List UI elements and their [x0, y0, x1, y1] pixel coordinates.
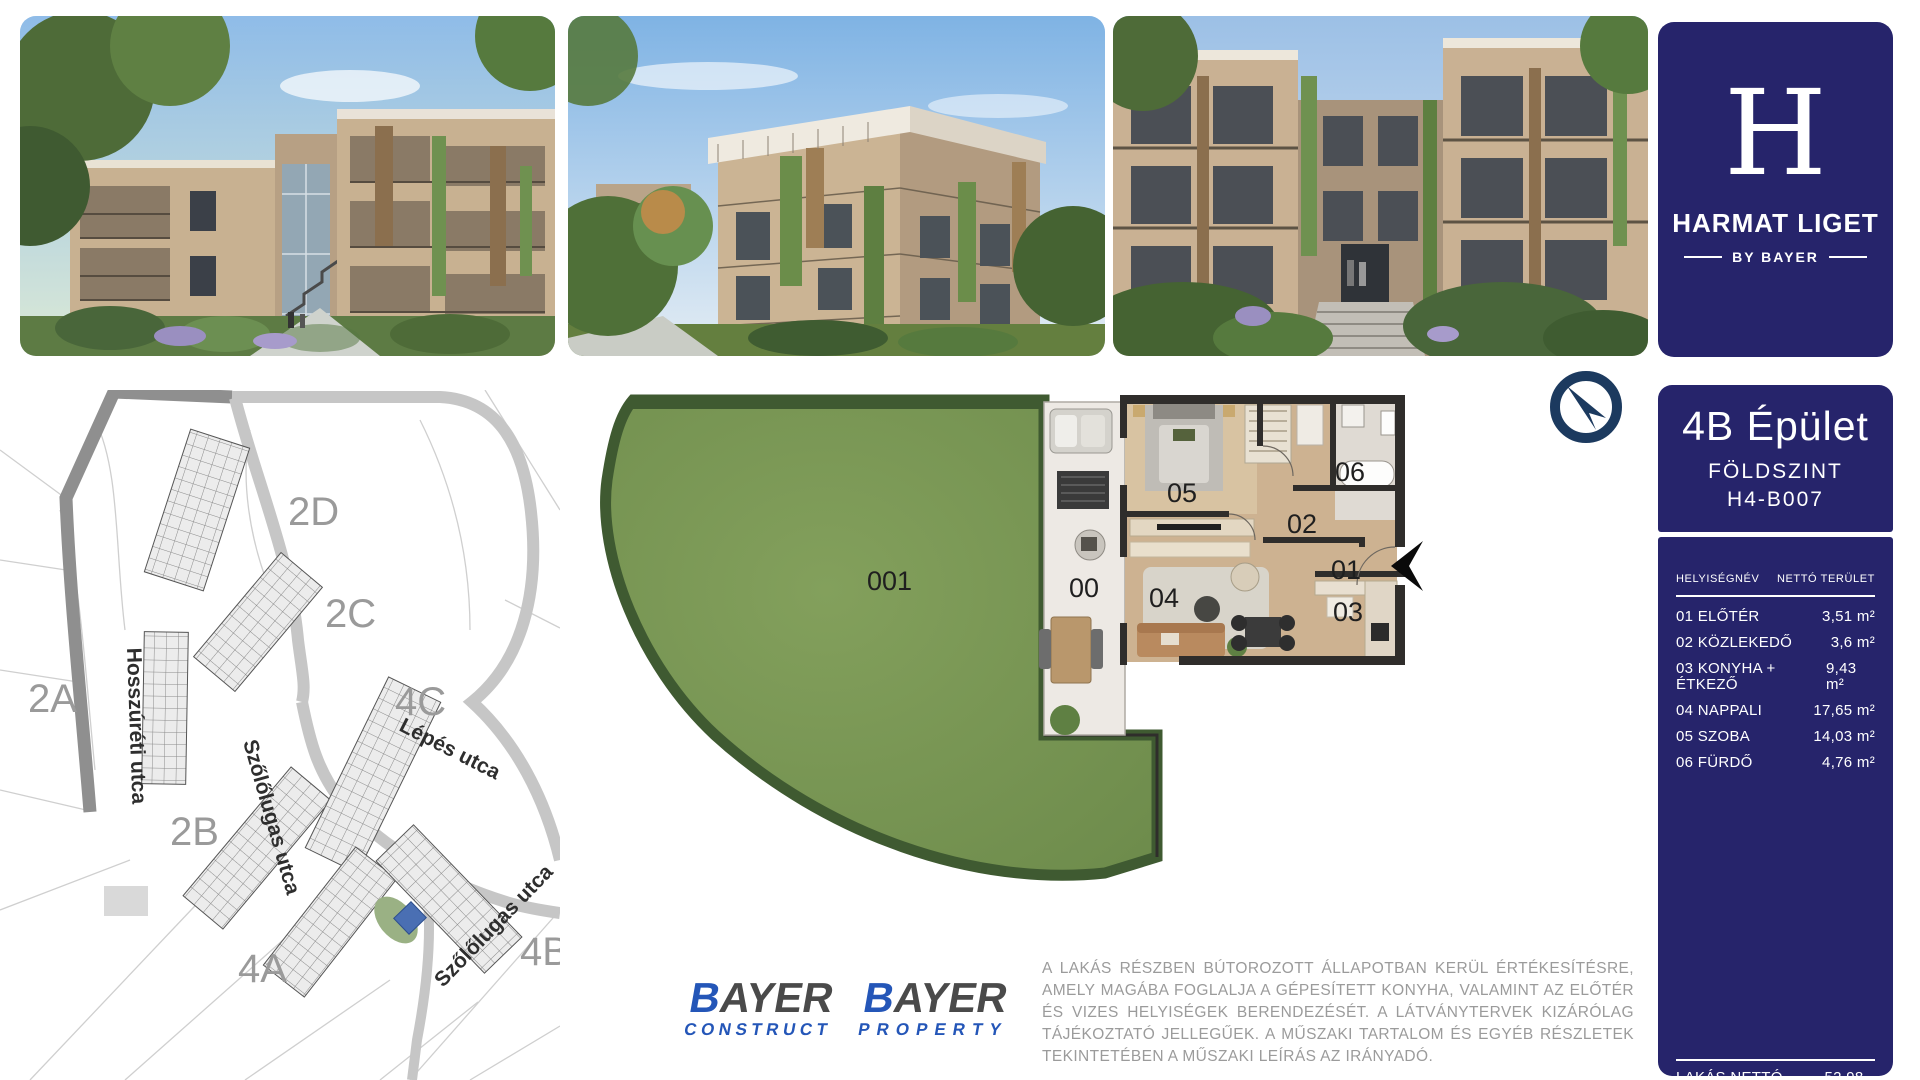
byline-text: BY BAYER: [1732, 249, 1819, 265]
construct-subtitle: CONSTRUCT: [683, 1020, 834, 1040]
courtyard-illustration: [20, 16, 555, 356]
disclaimer-text: A LAKÁS RÉSZBEN BÚTOROZOTT ÁLLAPOTBAN KE…: [1042, 958, 1634, 1068]
table-row: 06 FÜRDŐ 4,76 m²: [1676, 755, 1875, 771]
unit-header: 4B Épület FÖLDSZINT H4-B007: [1658, 385, 1893, 532]
unit-code: H4-B007: [1668, 488, 1883, 512]
table-row: 01 ELŐTÉR 3,51 m²: [1676, 609, 1875, 625]
map-label-4a: 4A: [238, 947, 287, 991]
label-room06: 06: [1335, 457, 1365, 487]
table-row: 05 SZOBA 14,03 m²: [1676, 729, 1875, 745]
byline-rule-left: [1684, 256, 1722, 258]
label-room05: 05: [1167, 478, 1197, 508]
floor-plan-drawing: 001 00 05 06 02 01 03 04: [545, 385, 1425, 890]
unit-sidebar: 4B Épület FÖLDSZINT H4-B007 HELYISÉGNÉV …: [1658, 385, 1893, 1076]
floor-name: FÖLDSZINT: [1668, 460, 1883, 484]
bayer-property-logo: BAYER PROPERTY: [857, 978, 1017, 1040]
byline-rule-right: [1829, 256, 1867, 258]
map-street-hosszureti: Hosszúréti utca: [122, 647, 150, 804]
map-label-2d: 2D: [288, 490, 339, 534]
render-photo-corner: [568, 16, 1105, 356]
map-label-4c: 4C: [395, 680, 446, 724]
bayer-construct-wordmark: BAYER: [686, 978, 840, 1018]
property-subtitle: PROPERTY: [857, 1020, 1010, 1040]
col-net-area: NETTÓ TERÜLET: [1777, 573, 1875, 585]
site-map-drawing: 2A 2B 2C 2D 4A 4B 4C Hosszúréti utca Sző…: [0, 390, 560, 1080]
summary-divider: [1676, 1059, 1875, 1061]
room-table: HELYISÉGNÉV NETTÓ TERÜLET 01 ELŐTÉR 3,51…: [1658, 537, 1893, 1076]
brand-name: HARMAT LIGET: [1658, 208, 1893, 239]
table-row: 02 KÖZLEKEDŐ 3,6 m²: [1676, 635, 1875, 651]
label-room03: 03: [1333, 597, 1363, 627]
corner-illustration: [568, 16, 1105, 356]
bayer-construct-logo: BAYER CONSTRUCT: [683, 978, 841, 1040]
table-row: 04 NAPPALI 17,65 m²: [1676, 703, 1875, 719]
brand-byline: BY BAYER: [1658, 249, 1893, 265]
bayer-property-wordmark: BAYER: [860, 978, 1017, 1018]
render-photo-entrance: [1113, 16, 1648, 356]
area-summary: LAKÁS NETTÓ TERÜLET 52,98 m² ÉRTÉKESÍTET…: [1676, 1049, 1875, 1080]
table-divider: [1676, 595, 1875, 597]
label-terrace: 00: [1069, 573, 1099, 603]
brand-h-monogram: H: [1658, 74, 1893, 192]
label-room04: 04: [1149, 583, 1179, 613]
datasheet: H HARMAT LIGET BY BAYER: [0, 0, 1920, 1080]
map-label-2b: 2B: [170, 810, 219, 854]
map-label-4b: 4B: [520, 930, 560, 974]
building-title: 4B Épület: [1668, 403, 1883, 450]
summary-row: LAKÁS NETTÓ TERÜLET 52,98 m²: [1676, 1070, 1875, 1080]
map-label-2a: 2A: [28, 677, 77, 721]
brand-panel: H HARMAT LIGET BY BAYER: [1658, 22, 1893, 357]
map-label-2c: 2C: [325, 592, 376, 636]
label-room01: 01: [1331, 555, 1361, 585]
entrance-illustration: [1113, 16, 1648, 356]
table-row: 03 KONYHA + ÉTKEZŐ 9,43 m²: [1676, 661, 1875, 693]
render-photo-courtyard: [20, 16, 555, 356]
col-room-name: HELYISÉGNÉV: [1676, 573, 1759, 585]
label-room02: 02: [1287, 509, 1317, 539]
floor-plan: 001 00 05 06 02 01 03 04: [545, 385, 1425, 890]
site-map: 2A 2B 2C 2D 4A 4B 4C Hosszúréti utca Sző…: [0, 390, 560, 1080]
label-garden: 001: [867, 566, 912, 596]
compass-icon: [1546, 367, 1626, 447]
